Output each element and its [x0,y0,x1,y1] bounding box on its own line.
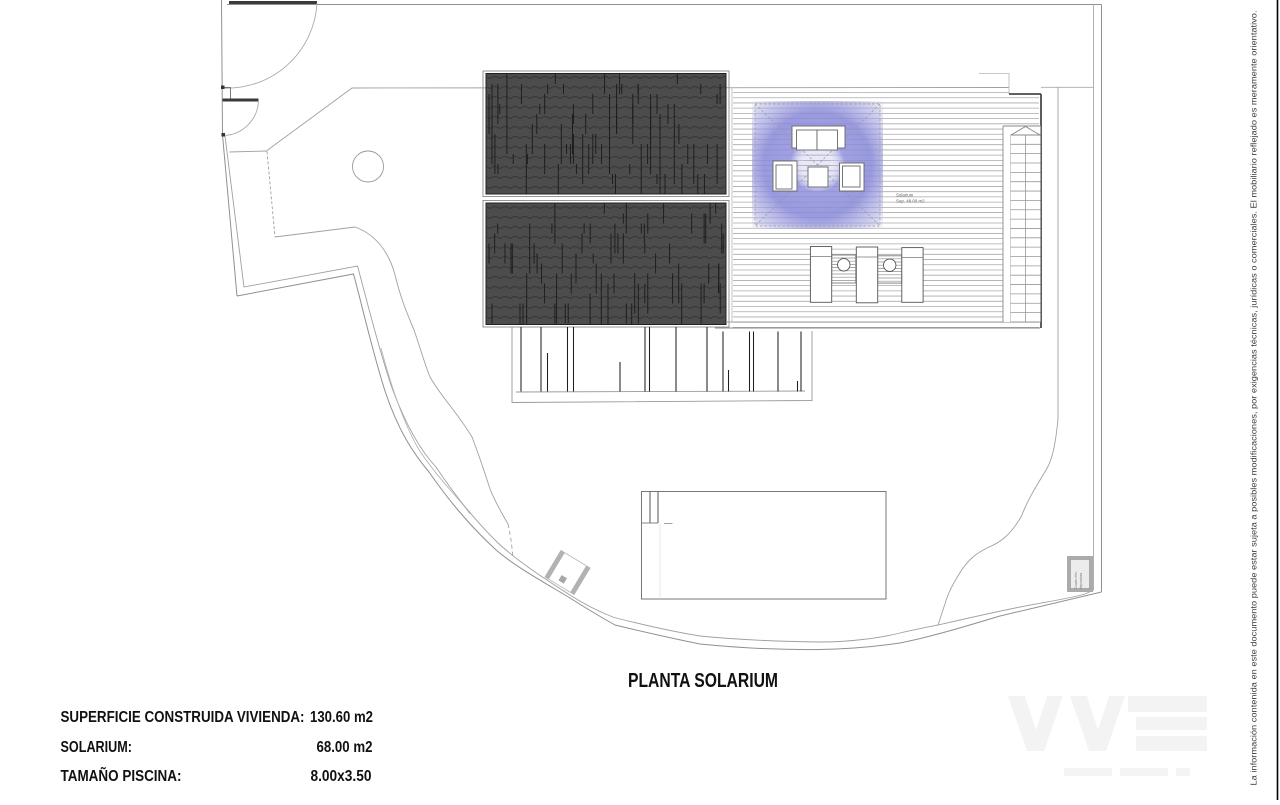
svg-text:Sup. 48.00 m2: Sup. 48.00 m2 [896,199,925,204]
svg-text:depuradora: depuradora [1079,572,1083,589]
svg-text:PLANTA SOLARIUM: PLANTA SOLARIUM [628,670,778,692]
svg-text:SUPERFICIE CONSTRUIDA VIVIENDA: SUPERFICIE CONSTRUIDA VIVIENDA: [61,709,305,726]
svg-text:SOLARIUM:: SOLARIUM: [61,739,133,756]
svg-text:TAMAÑO PISCINA:: TAMAÑO PISCINA: [61,765,182,785]
svg-text:Cuadro elec.: Cuadro elec. [1074,571,1078,589]
svg-text:8.00x3.50: 8.00x3.50 [311,768,372,785]
svg-text:68.00 m2: 68.00 m2 [317,739,373,756]
svg-text:Solarium: Solarium [896,193,914,198]
svg-text:La información contenida en es: La información contenida en este documen… [1250,11,1259,786]
svg-text:130.60 m2: 130.60 m2 [310,709,373,726]
